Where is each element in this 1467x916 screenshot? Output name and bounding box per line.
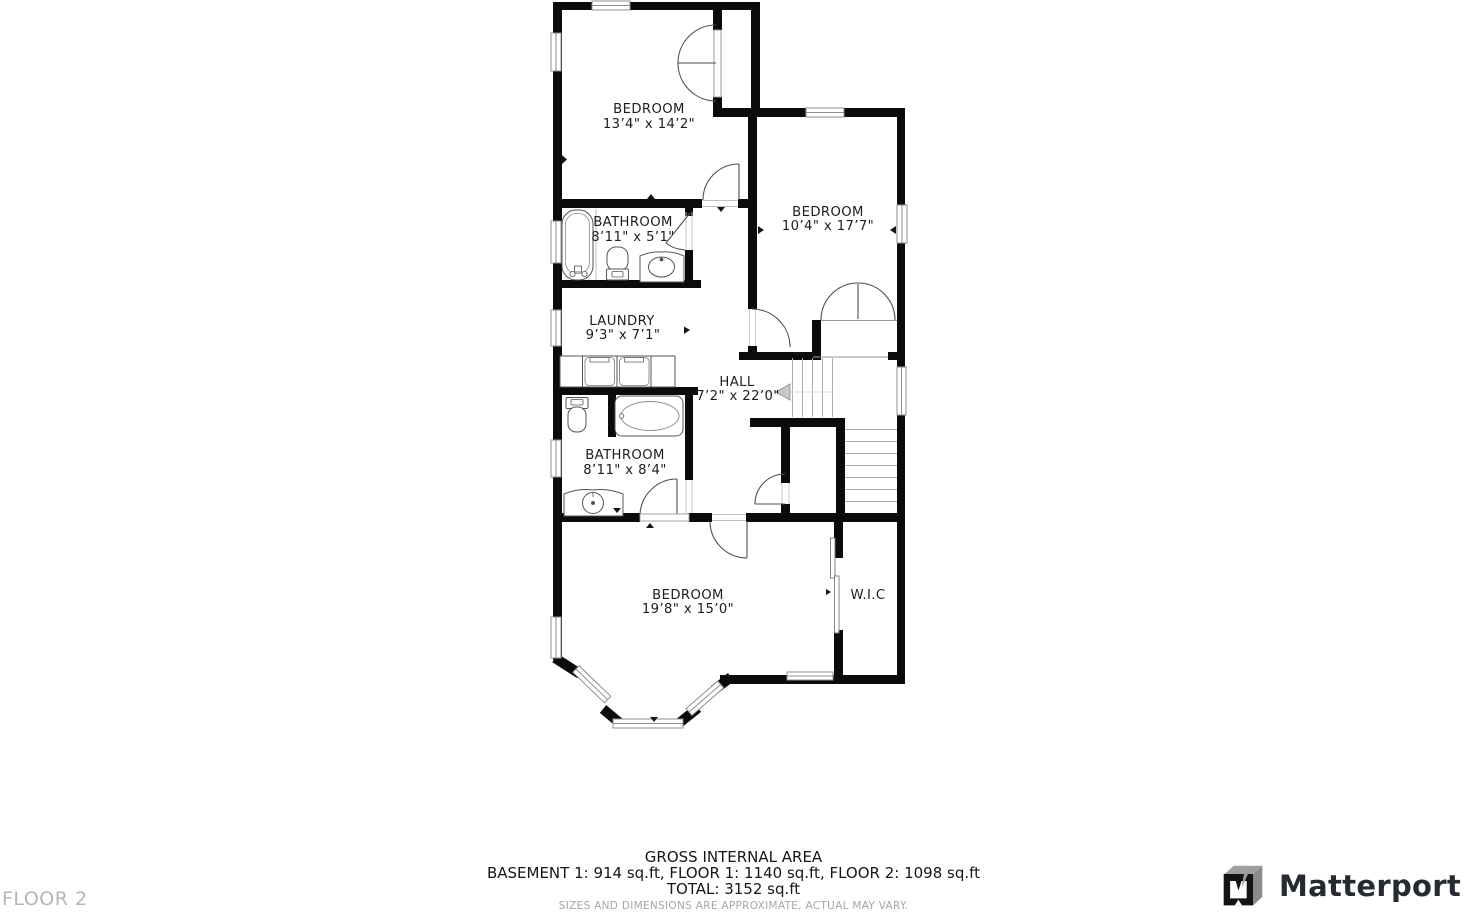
window: [573, 666, 611, 703]
room-label-wic: W.I.C: [850, 588, 885, 603]
toilet: [607, 247, 629, 280]
door-swing: [710, 521, 747, 558]
door-swing: [703, 164, 739, 200]
room-dims-bedroom-top: 13’4" x 14’2": [603, 117, 695, 132]
window: [787, 672, 833, 680]
window: [897, 205, 907, 243]
stairs: [758, 358, 897, 502]
window: [686, 681, 724, 715]
double-door-swing: [678, 25, 716, 101]
matterport-logo: Matterport: [1220, 863, 1461, 909]
window: [551, 221, 561, 263]
closet-openings: [714, 30, 897, 357]
window: [551, 310, 561, 346]
matterport-wordmark: Matterport: [1279, 869, 1461, 903]
sink: [640, 252, 684, 282]
window: [806, 108, 844, 117]
window: [897, 367, 906, 415]
sink: [564, 490, 623, 517]
door-swing: [752, 309, 790, 347]
door-thresholds: [686, 201, 789, 521]
room-label-laundry: LAUNDRY: [589, 314, 655, 329]
wall-opening: [640, 514, 689, 521]
room-dims-bathroom-bottom: 8’11" x 8’4": [583, 463, 666, 478]
room-dims-bedroom-right: 10’4" x 17’7": [782, 219, 874, 234]
room-dims-bathroom-top: 8’11" x 5’1": [591, 230, 674, 245]
matterport-cube-icon: [1220, 863, 1266, 909]
window: [592, 1, 630, 10]
door-swing: [640, 479, 677, 516]
bathtub: [615, 396, 683, 436]
window: [613, 719, 683, 728]
room-label-bedroom-right: BEDROOM: [792, 205, 864, 220]
washer-dryer: [560, 356, 675, 387]
walls: [553, 2, 905, 684]
window: [551, 617, 561, 658]
room-label-hall: HALL: [719, 375, 754, 390]
door-swing: [755, 474, 785, 504]
floor-plan-page: BEDROOM 13’4" x 14’2" BEDROOM 10’4" x 17…: [0, 0, 1467, 916]
room-dims-hall: 7’2" x 22’0": [696, 389, 779, 404]
window: [551, 440, 561, 477]
room-dims-laundry: 9’3" x 7’1": [586, 328, 661, 343]
floor-plan: BEDROOM 13’4" x 14’2" BEDROOM 10’4" x 17…: [0, 0, 1467, 916]
room-label-bathroom-bottom: BATHROOM: [585, 448, 665, 463]
double-door-swing: [821, 283, 895, 320]
room-label-bathroom-top: BATHROOM: [593, 215, 673, 230]
window: [551, 33, 561, 71]
room-dims-bedroom-bottom: 19’8" x 15’0": [642, 602, 734, 617]
toilet: [566, 398, 588, 433]
room-label-bedroom-bottom: BEDROOM: [652, 588, 724, 603]
bathtub: [562, 210, 593, 280]
room-label-bedroom-top: BEDROOM: [613, 102, 685, 117]
